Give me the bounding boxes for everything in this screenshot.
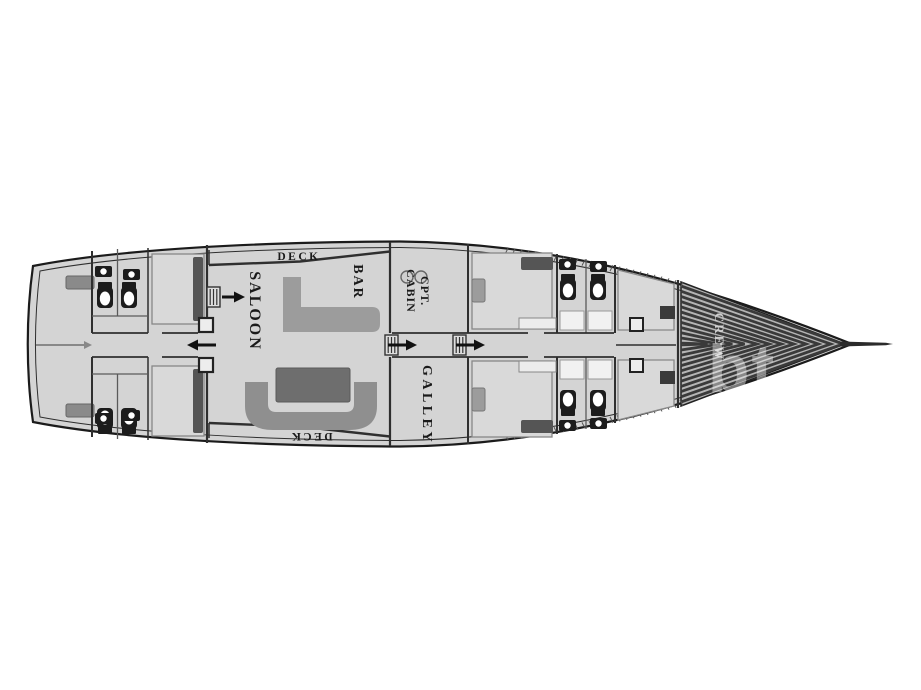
nightstand (472, 279, 485, 302)
aft-seat (66, 404, 94, 417)
toilet-icon (590, 390, 606, 416)
sink-icon (559, 420, 576, 431)
sink-icon (559, 259, 576, 270)
locker (660, 306, 675, 319)
toilet-icon (560, 390, 576, 416)
toilet-icon (560, 274, 576, 300)
pillow (193, 257, 203, 321)
deck-plan: DECK DECK SALOON BAR CPT. CABIN GALLEY C… (0, 0, 921, 690)
bowsprit (840, 342, 893, 347)
sink-icon (590, 261, 607, 272)
guest-cabin-bottom (472, 361, 556, 437)
label-galley: GALLEY (419, 365, 434, 445)
locker (660, 371, 675, 384)
label-captain-cabin-line1: CPT. (418, 276, 432, 306)
pillow (193, 369, 203, 433)
sink-icon (123, 410, 140, 421)
label-bar: BAR (350, 264, 365, 300)
guest-cabin-top (472, 253, 556, 329)
label-deck-bottom: DECK (289, 430, 332, 442)
crew-bed (618, 270, 674, 330)
cabinet (519, 318, 556, 329)
shower (560, 311, 584, 330)
nightstand (472, 388, 485, 411)
hatch-box (630, 359, 643, 372)
toilet-icon (97, 282, 113, 308)
toilet-icon (121, 282, 137, 308)
pillow (521, 420, 553, 433)
shower (560, 360, 584, 379)
stairs-icon (207, 287, 220, 307)
deck-plank (681, 343, 708, 345)
label-saloon: SALOON (246, 271, 263, 351)
shower (588, 311, 612, 330)
toilet-icon (590, 274, 606, 300)
sink-icon (95, 413, 112, 424)
cabinet (519, 361, 556, 372)
label-captain-cabin-line2: CABIN (404, 269, 418, 313)
hatch-box (630, 318, 643, 331)
aft-seat (66, 276, 94, 289)
hatch-box (199, 358, 213, 372)
shower (588, 360, 612, 379)
sink-icon (123, 269, 140, 280)
saloon-table (276, 368, 350, 402)
crew-bed (618, 360, 674, 420)
hatch-box (199, 318, 213, 332)
watermark: bt (708, 331, 776, 407)
sink-icon (590, 418, 607, 429)
pillow (521, 257, 553, 270)
sink-icon (95, 266, 112, 277)
label-deck-top: DECK (277, 251, 320, 263)
